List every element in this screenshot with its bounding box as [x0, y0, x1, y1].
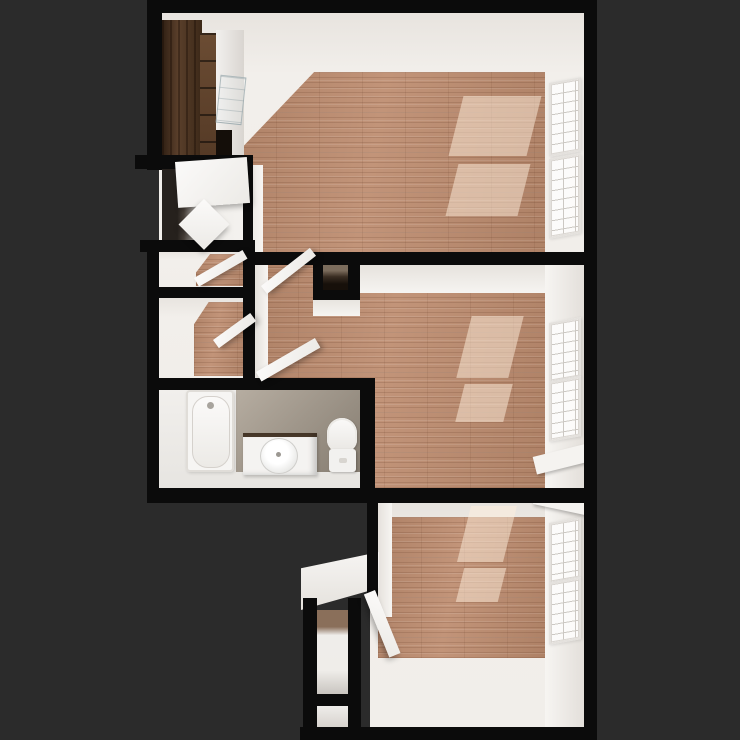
- wall-closet-divider: [147, 287, 255, 298]
- bathtub-drain: [207, 402, 214, 409]
- floorplan-canvas: [0, 0, 740, 740]
- wall-laundry-west: [303, 598, 317, 740]
- window-bedroom-middle-2: [549, 376, 581, 442]
- wall-face-hall-closet-south: [313, 298, 360, 316]
- room-storage-closet: [317, 706, 348, 727]
- wall-bedroom-bottom-west: [367, 503, 378, 600]
- wall-laundry-east: [348, 598, 361, 740]
- toilet-flush-button: [339, 458, 347, 463]
- door-entry-main: [175, 157, 250, 208]
- room-laundry-closet: [317, 610, 348, 694]
- wall-left-lower: [147, 240, 159, 503]
- sunlight-patch-bottom-2: [456, 568, 506, 602]
- sink-drain: [276, 452, 281, 457]
- toilet-bowl: [327, 418, 357, 452]
- sunlight-patch-living-1: [449, 96, 542, 156]
- wall-right: [584, 0, 597, 740]
- window-living-2: [549, 153, 581, 239]
- window-bedroom-bottom-1: [549, 517, 581, 584]
- sunlight-patch-living-2: [446, 164, 531, 216]
- window-bedroom-bottom-2: [549, 577, 581, 645]
- wall-face-bedroom-middle-north: [358, 265, 545, 293]
- wall-hall-closet-south: [313, 290, 360, 300]
- window-living-1: [549, 77, 581, 157]
- window-bedroom-middle-1: [549, 317, 581, 383]
- kitchen-base-cabinets: [200, 33, 216, 157]
- sunlight-patch-middle-2: [455, 384, 512, 422]
- wall-face-bedroom-bottom-west: [378, 503, 392, 617]
- kitchen-counter-gap: [216, 130, 232, 158]
- wall-bottom: [300, 727, 597, 740]
- wall-face-hallway-west: [255, 252, 268, 378]
- wall-left-upper: [147, 0, 162, 170]
- wall-top: [148, 0, 597, 13]
- kitchen-tall-cabinet: [162, 20, 202, 156]
- wall-laundry-divider: [303, 694, 361, 706]
- kitchen-glass-shelf: [216, 75, 247, 125]
- wall-middle-south: [147, 488, 584, 503]
- wall-bathroom-east: [360, 378, 375, 503]
